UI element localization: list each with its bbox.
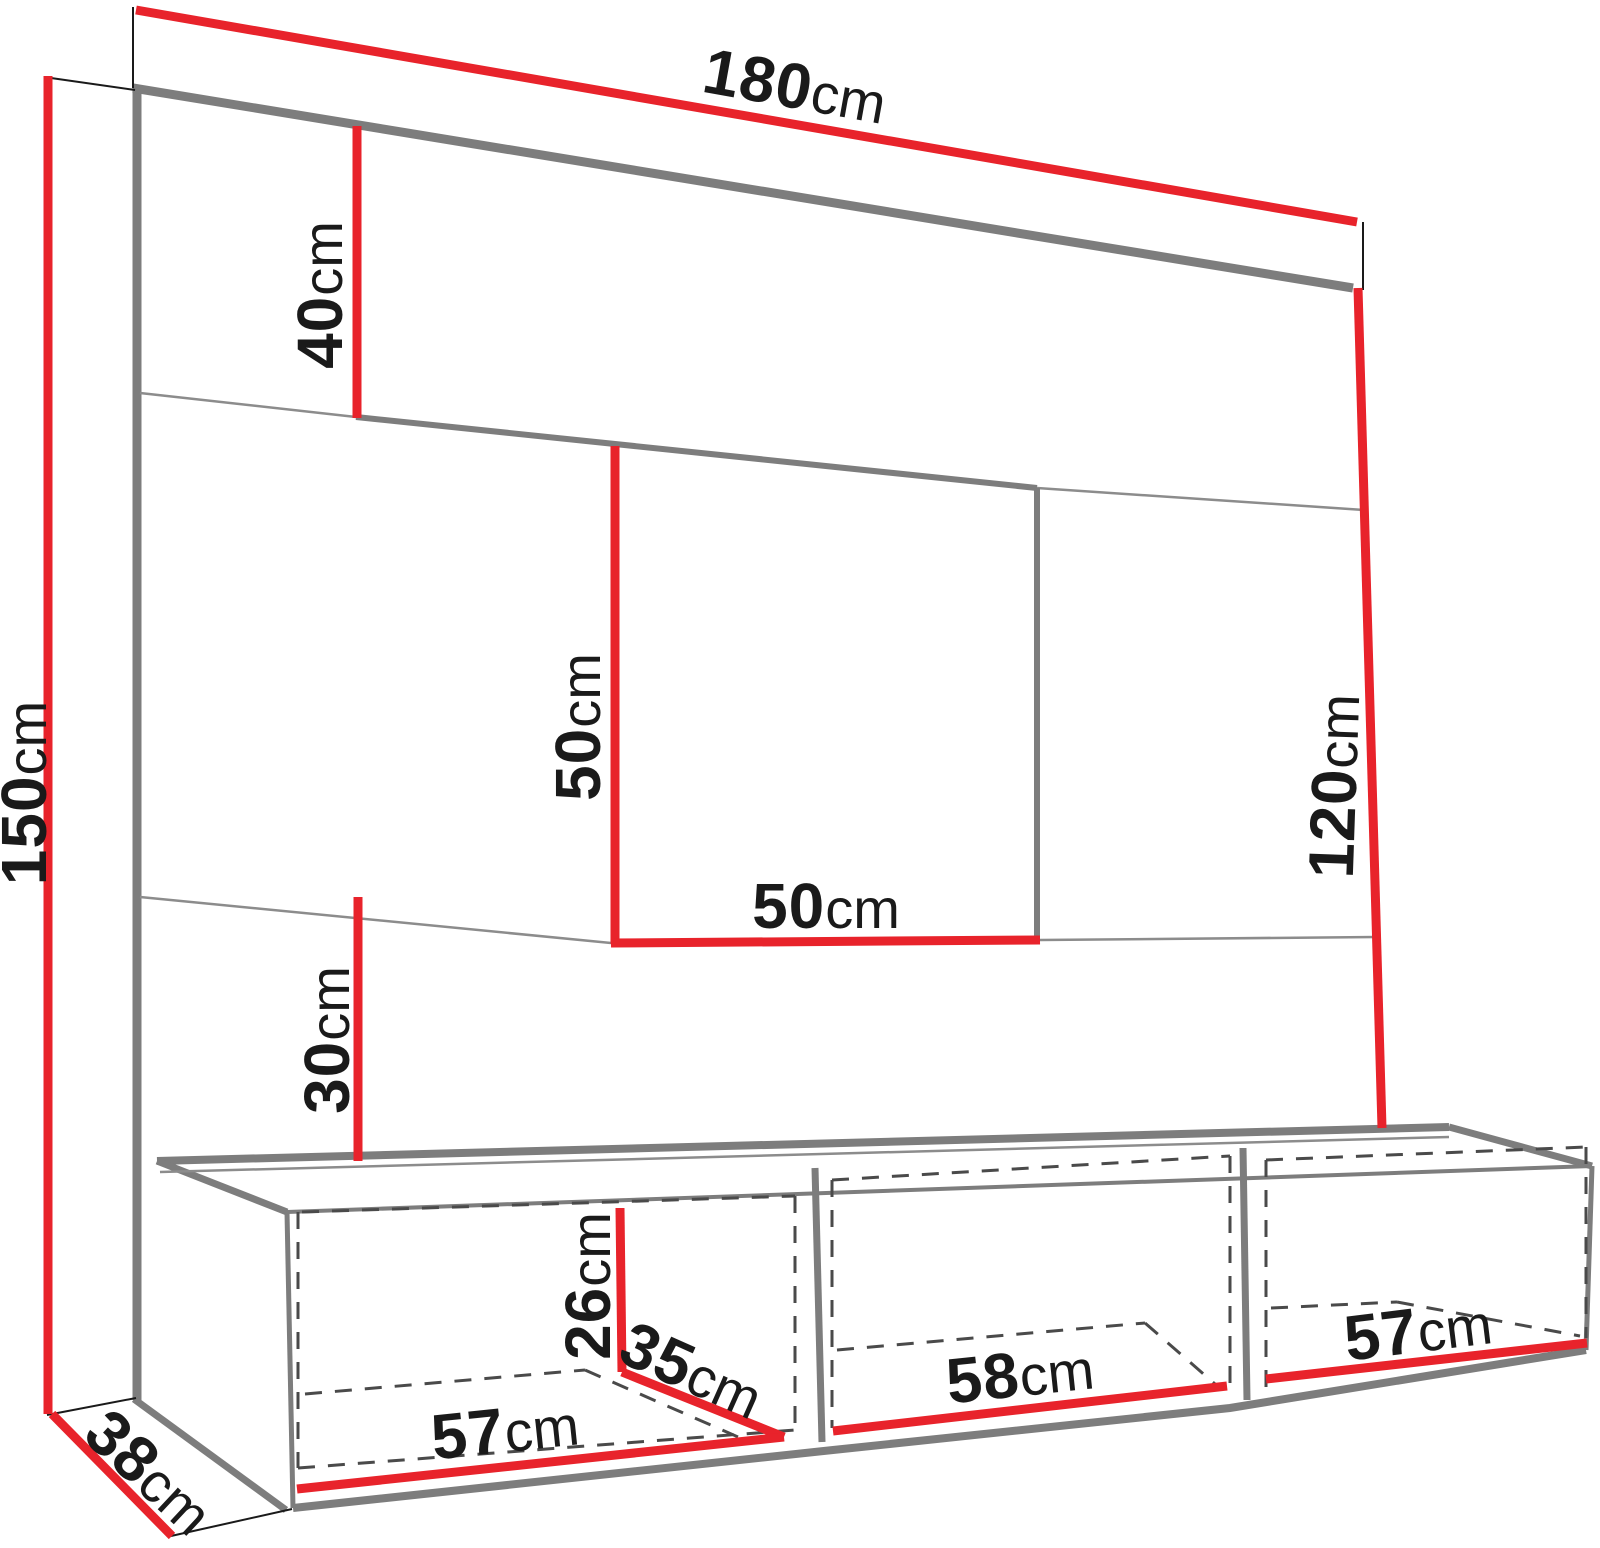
panel-division-lines bbox=[140, 393, 1376, 943]
upper-shelf-line-left bbox=[140, 393, 356, 417]
dim-value: 26 bbox=[552, 1287, 624, 1360]
dim-value: 150 bbox=[0, 775, 60, 885]
compartment-2-floor-diagonal-dashed bbox=[1145, 1323, 1215, 1384]
dim-line-niche-width bbox=[611, 940, 1040, 943]
dim-label-niche-width: 50cm bbox=[752, 874, 900, 938]
dim-value: 50 bbox=[542, 728, 614, 801]
dim-value: 120 bbox=[1295, 767, 1371, 879]
dim-unit: cm bbox=[549, 653, 612, 728]
dim-unit: cm bbox=[501, 1393, 582, 1463]
upper-shelf-line-right bbox=[1037, 488, 1364, 510]
lower-shelf-line-right bbox=[1040, 937, 1376, 940]
dim-value: 30 bbox=[291, 1041, 363, 1114]
dim-value: 57 bbox=[1340, 1294, 1421, 1374]
dim-value: 57 bbox=[428, 1394, 508, 1473]
dim-unit: cm bbox=[559, 1212, 622, 1287]
dim-unit: cm bbox=[1016, 1337, 1097, 1407]
dim-label-total-height: 150cm bbox=[0, 701, 56, 885]
dim-unit: cm bbox=[1414, 1292, 1496, 1364]
dim-label-lower-section-height: 30cm bbox=[295, 966, 359, 1114]
cabinet-divider-2 bbox=[1243, 1148, 1247, 1400]
dim-label-middle-compartment-width: 58cm bbox=[943, 1334, 1097, 1413]
ext-total-height-top bbox=[44, 77, 135, 90]
dim-label-left-compartment-width: 57cm bbox=[428, 1390, 582, 1469]
cabinet-divider-1 bbox=[815, 1168, 822, 1442]
dim-value: 40 bbox=[284, 296, 356, 369]
dim-label-right-section-height: 120cm bbox=[1299, 693, 1369, 880]
diagram-canvas: 180cm 150cm 40cm 50cm 50cm 120cm 30cm 26… bbox=[0, 0, 1600, 1548]
dim-unit: cm bbox=[806, 61, 891, 136]
compartment-1-floor-dashed bbox=[305, 1370, 585, 1394]
dim-label-opening-height: 26cm bbox=[556, 1212, 620, 1360]
compartment-2-top-dashed bbox=[832, 1156, 1230, 1180]
cabinet-back-top-edge bbox=[157, 1127, 1449, 1161]
tv-niche bbox=[356, 417, 1037, 941]
niche-top-edge bbox=[356, 417, 1037, 488]
dim-unit: cm bbox=[298, 966, 361, 1041]
dim-unit: cm bbox=[1306, 693, 1372, 770]
cabinet-front-left-edge bbox=[287, 1212, 293, 1508]
dim-unit: cm bbox=[825, 877, 900, 940]
dim-unit: cm bbox=[0, 701, 58, 776]
dim-label-niche-height: 50cm bbox=[546, 653, 610, 801]
dim-value: 58 bbox=[943, 1338, 1023, 1417]
dim-label-top-section-height: 40cm bbox=[288, 221, 352, 369]
dim-unit: cm bbox=[291, 221, 354, 296]
lower-shelf-line-left bbox=[140, 897, 611, 943]
dim-value: 50 bbox=[752, 870, 825, 942]
extension-lines bbox=[44, 7, 1363, 1536]
